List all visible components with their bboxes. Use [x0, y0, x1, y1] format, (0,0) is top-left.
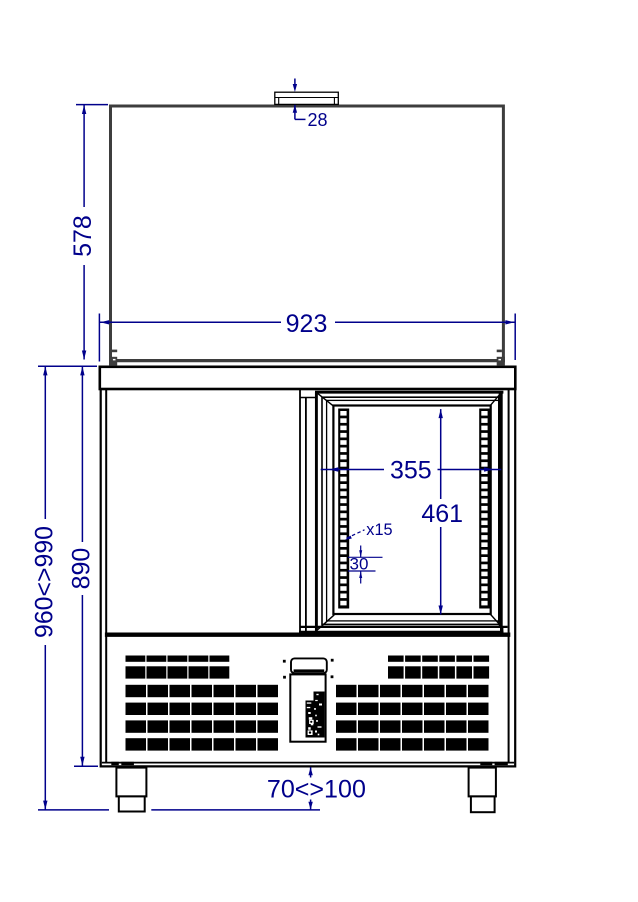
svg-text:30: 30: [350, 555, 369, 574]
svg-text:x15: x15: [366, 521, 392, 539]
svg-text:578: 578: [69, 215, 97, 257]
svg-text:890: 890: [68, 548, 96, 590]
svg-text:923: 923: [286, 310, 328, 338]
svg-text:70<>100: 70<>100: [267, 775, 366, 803]
svg-text:461: 461: [421, 500, 463, 528]
svg-text:960<>990: 960<>990: [31, 526, 59, 638]
svg-text:28: 28: [308, 110, 328, 130]
svg-text:355: 355: [390, 456, 432, 484]
